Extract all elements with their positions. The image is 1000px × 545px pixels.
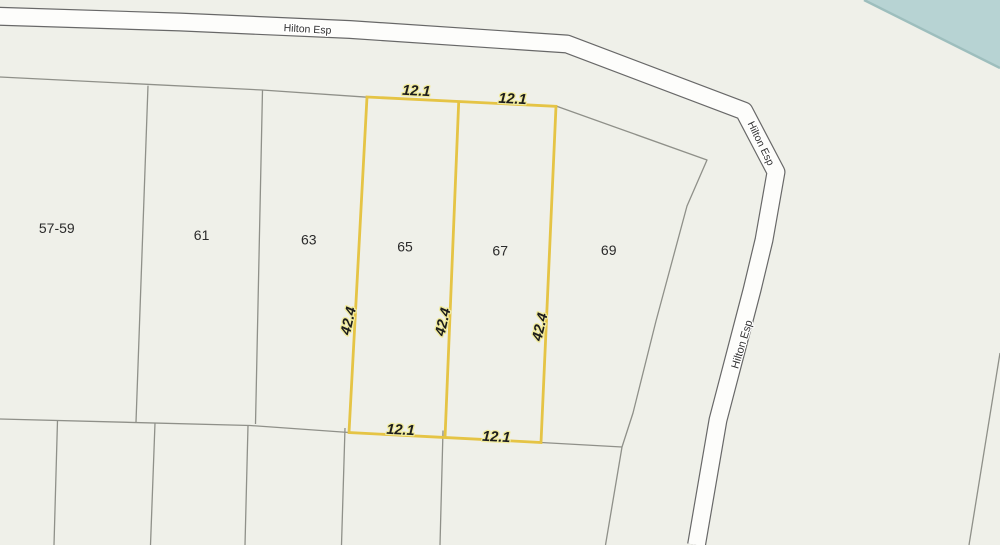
- svg-text:63: 63: [301, 232, 317, 248]
- svg-text:57-59: 57-59: [39, 220, 75, 236]
- svg-text:61: 61: [194, 227, 210, 243]
- svg-text:12.1: 12.1: [498, 91, 527, 108]
- svg-text:12.1: 12.1: [386, 422, 415, 439]
- svg-text:69: 69: [601, 242, 617, 258]
- svg-text:67: 67: [492, 243, 508, 259]
- svg-text:65: 65: [397, 239, 413, 255]
- svg-text:12.1: 12.1: [402, 83, 431, 100]
- svg-text:12.1: 12.1: [482, 429, 511, 446]
